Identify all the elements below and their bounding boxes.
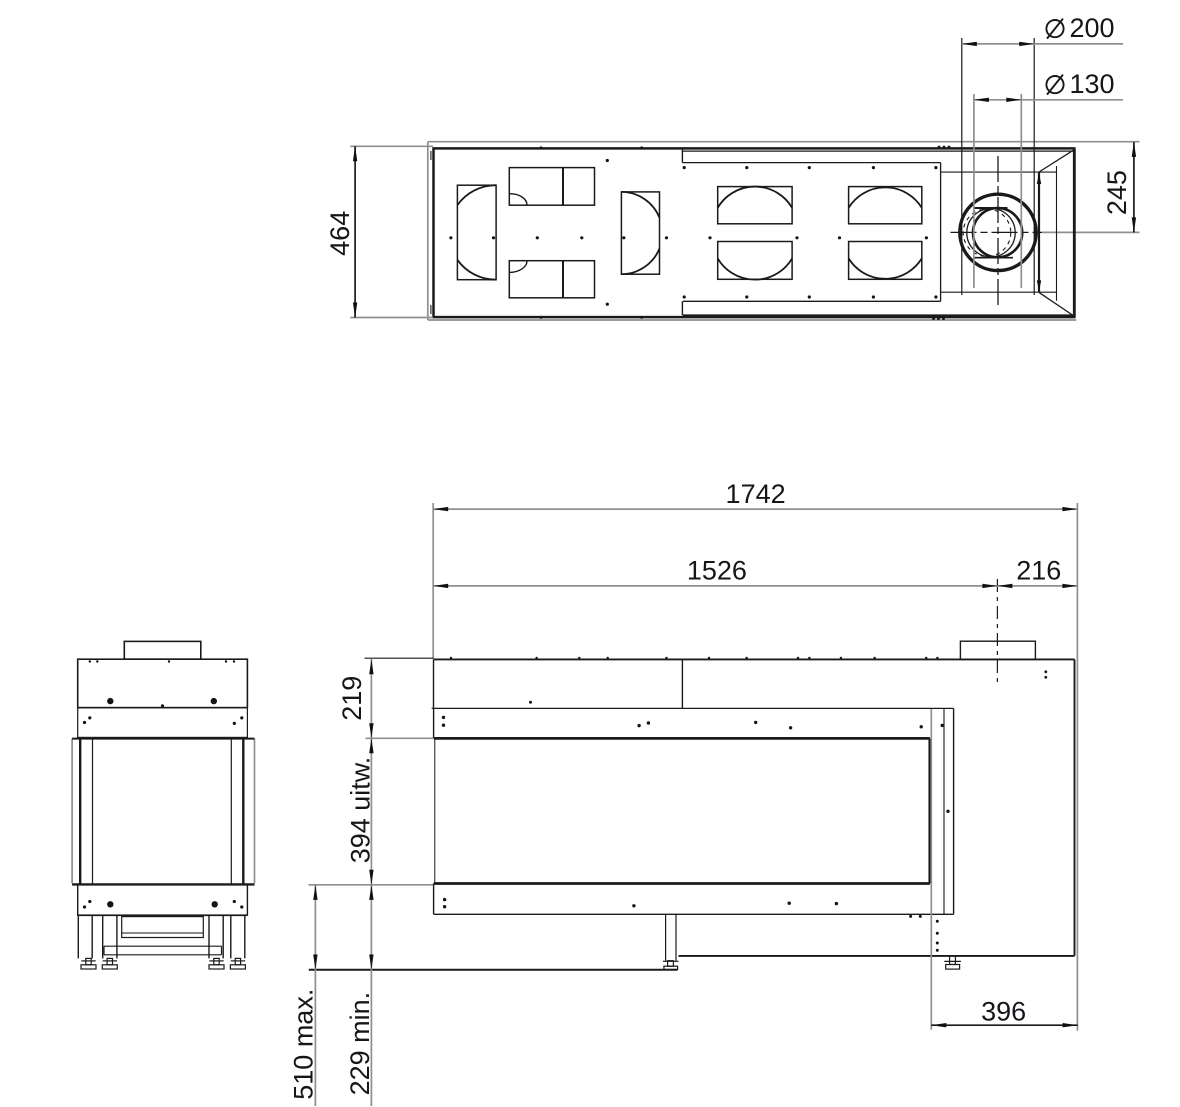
svg-text:1742: 1742 — [726, 479, 786, 509]
svg-text:130: 130 — [1069, 69, 1114, 99]
svg-text:245: 245 — [1102, 170, 1132, 215]
svg-text:200: 200 — [1069, 13, 1114, 43]
svg-text:464: 464 — [325, 211, 355, 256]
svg-text:216: 216 — [1016, 555, 1061, 585]
svg-text:229 min.: 229 min. — [345, 992, 375, 1096]
svg-text:394 uitw.: 394 uitw. — [346, 757, 376, 864]
svg-text:510 max.: 510 max. — [289, 989, 319, 1100]
svg-text:219: 219 — [337, 676, 367, 721]
svg-text:1526: 1526 — [687, 556, 747, 586]
svg-text:396: 396 — [981, 996, 1026, 1026]
